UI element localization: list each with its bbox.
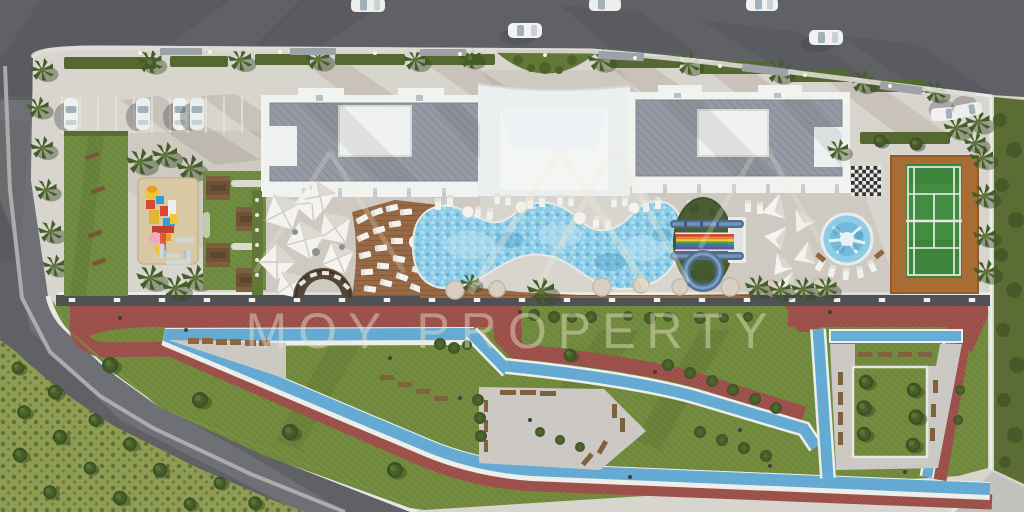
svg-text:MOY PROPERTY: MOY PROPERTY bbox=[245, 303, 778, 359]
